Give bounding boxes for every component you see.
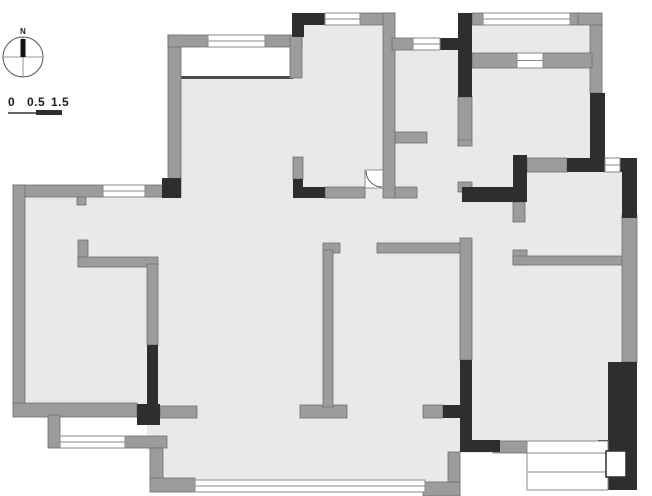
wall-segment xyxy=(77,197,86,205)
wall-segment-dark xyxy=(458,13,472,97)
floor-plan-canvas xyxy=(0,0,652,496)
wall-segment xyxy=(513,202,525,222)
north-arrow-icon xyxy=(3,37,43,77)
bay-window xyxy=(527,441,608,490)
scale-label-0: 0 xyxy=(8,95,15,109)
wall-segment-dark xyxy=(590,93,605,160)
scale-label-05: 0.5 xyxy=(27,95,45,109)
wall-segment xyxy=(150,448,163,482)
wall-segment-dark xyxy=(460,360,472,452)
wall-segment xyxy=(377,243,462,253)
wall-segment xyxy=(13,403,137,417)
wall-segment xyxy=(458,97,472,145)
room-fill xyxy=(460,253,625,453)
wall-segment xyxy=(622,215,637,362)
wall-segment xyxy=(527,158,567,172)
wall-segment xyxy=(392,38,413,50)
wall-segment xyxy=(460,238,472,360)
wall-segment-dark xyxy=(137,404,160,425)
wall-segment xyxy=(48,415,60,448)
wall-segment xyxy=(125,436,167,448)
wall-segment xyxy=(472,53,517,68)
wall-segment xyxy=(290,35,302,78)
room-fill xyxy=(513,172,637,265)
wall-segment-dark xyxy=(460,440,500,452)
wall-segment xyxy=(78,257,158,267)
wall-segment xyxy=(160,406,197,418)
wall-segment xyxy=(543,53,592,68)
utility-shaft-box xyxy=(606,451,626,477)
wall-segment xyxy=(293,157,303,179)
wall-segment-dark xyxy=(147,345,158,405)
wall-segment-dark xyxy=(443,405,460,418)
wall-segment-dark xyxy=(513,155,527,202)
wall-segment xyxy=(458,140,472,146)
wall-segment xyxy=(395,132,427,143)
wall-segment xyxy=(150,478,195,492)
edge-line xyxy=(181,76,293,79)
entry-door xyxy=(365,170,383,188)
wall-segment xyxy=(395,187,417,198)
wall-segment-dark xyxy=(462,187,513,202)
wall-segment-dark xyxy=(293,187,325,198)
wall-segment xyxy=(13,185,25,410)
north-label: N xyxy=(20,27,26,36)
wall-segment-dark xyxy=(622,160,637,218)
wall-segment xyxy=(168,35,181,197)
wall-segment xyxy=(145,185,163,197)
wall-segment-dark xyxy=(162,178,181,198)
scale-label-15: 1.5 xyxy=(51,95,69,109)
wall-segment-dark xyxy=(440,38,460,50)
scale-thick-segment xyxy=(36,110,62,115)
wall-segment xyxy=(472,13,483,25)
floor-plan-page: N 0 0.5 1.5 xyxy=(0,0,652,496)
wall-segment xyxy=(423,482,460,496)
room-fill xyxy=(302,25,383,80)
wall-segment xyxy=(147,264,158,345)
wall-segment xyxy=(423,405,443,418)
utility-shaft xyxy=(606,451,626,477)
wall-segment xyxy=(323,250,333,407)
wall-segment xyxy=(578,13,602,25)
scale-bar xyxy=(8,110,62,115)
wall-segment xyxy=(13,185,103,197)
wall-segment xyxy=(513,256,630,265)
wall-segment xyxy=(325,187,365,198)
wall-segment-dark xyxy=(567,158,605,172)
wall-segment-dark xyxy=(292,25,304,37)
wall-segment-dark xyxy=(292,13,325,25)
bay-window xyxy=(527,441,608,490)
compass-needle xyxy=(21,39,26,57)
wall-segment xyxy=(168,35,208,47)
